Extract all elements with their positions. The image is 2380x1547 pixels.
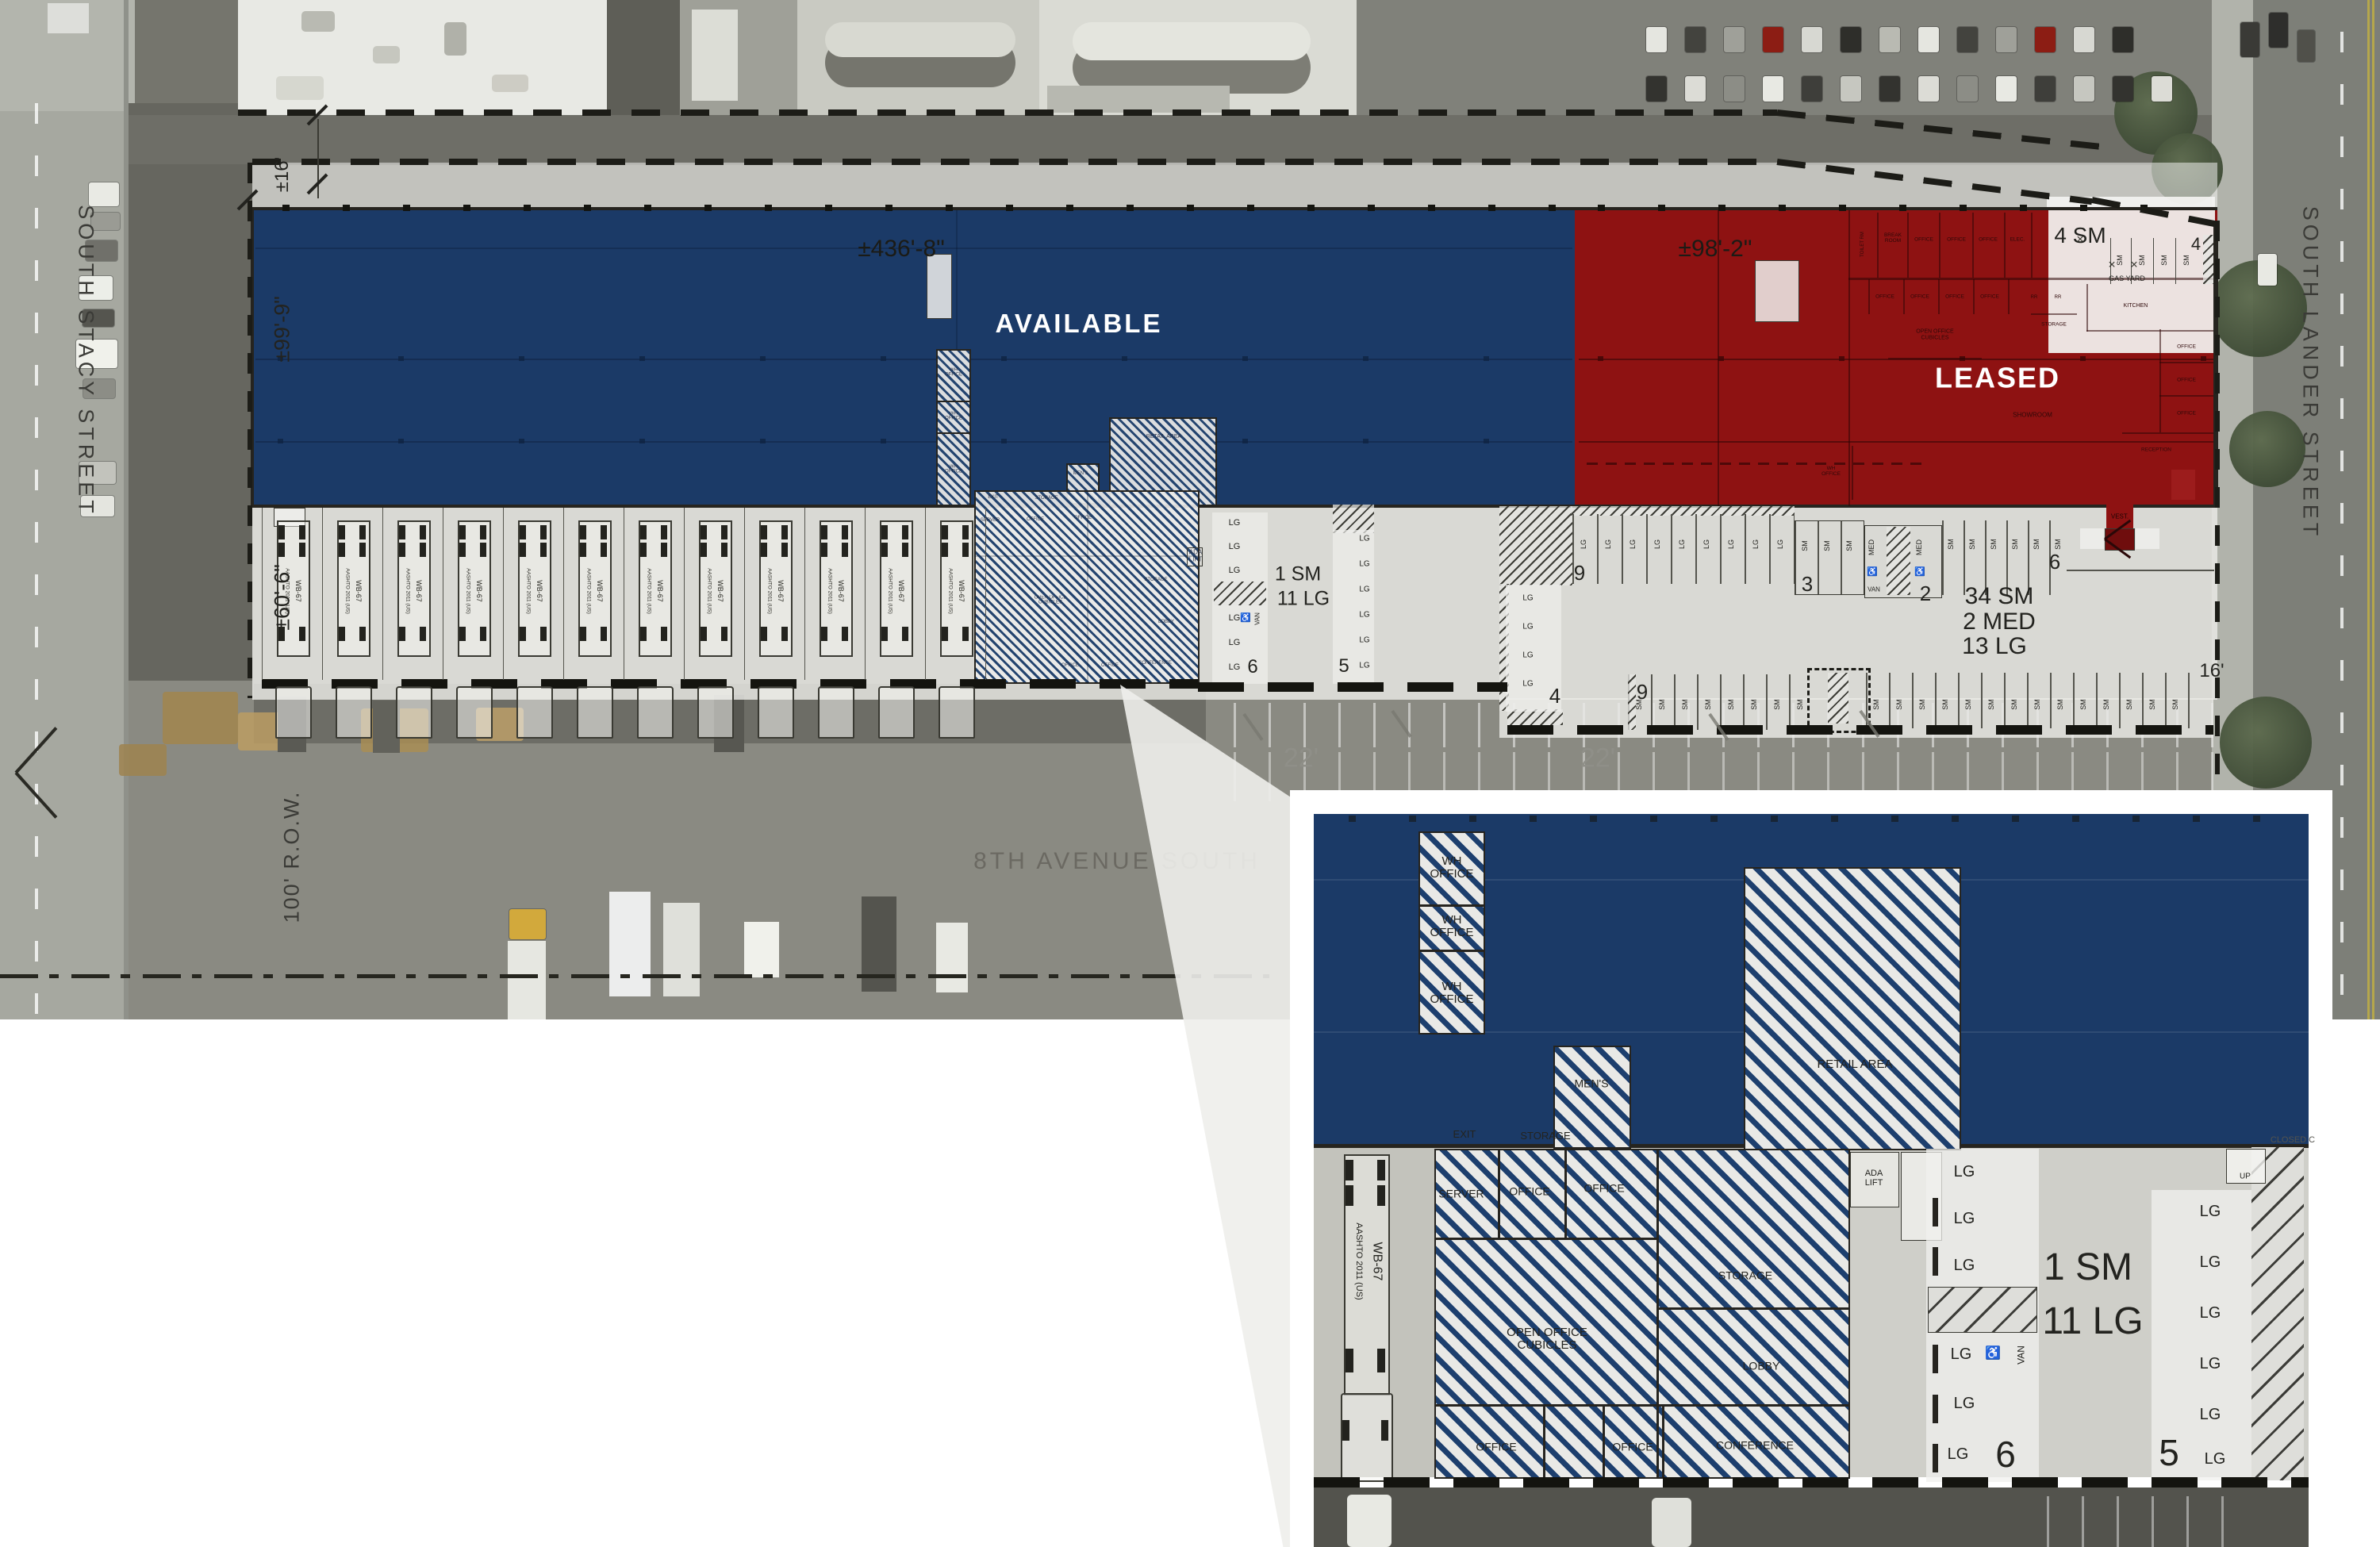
dock-truck-wheel (881, 543, 888, 557)
dock-truck-wheel (781, 525, 788, 539)
col-dots (278, 439, 1571, 443)
vest-exit-box (2105, 528, 2135, 551)
med-label: MED (1868, 539, 1876, 555)
open-office-l (1888, 358, 1982, 359)
leased-rr: RR (2055, 295, 2062, 300)
dock-truck-wheel (601, 627, 607, 641)
gas-4: 4 (2191, 235, 2201, 254)
rowB-sm-labels-r: SM (2103, 699, 2111, 710)
gas-sm-labels: SM (2183, 255, 2191, 266)
dock-truck-wheel (821, 525, 827, 539)
lg-col-mid-labels: LG (1522, 681, 1533, 689)
room-office: OFFICE (1061, 663, 1079, 668)
leased-office: OFFICE (1980, 294, 1999, 299)
lg-col-mid-labels: LG (1522, 652, 1533, 661)
rowB-sm-labels-r: SM (1942, 699, 1950, 710)
dock-truck-wheel (359, 525, 366, 539)
rowB-sm-labels-r: SM (1919, 699, 1927, 710)
dock-truck-label: WB-67 (354, 580, 362, 602)
rowB-sm-labels-l: SM (1636, 699, 1644, 710)
gas-sm-labels: SM (2161, 255, 2169, 266)
x-mark (15, 727, 58, 773)
lg-col-mid-labels: LG (1522, 624, 1533, 632)
dock-truck-wheel (781, 627, 788, 641)
room-wh: WH OFFICE (945, 412, 962, 422)
dock-truck-wheel (640, 627, 647, 641)
leased-room-div (2004, 213, 2006, 278)
dock-truck-cab (396, 686, 432, 739)
zone-leased: LEASED (1935, 363, 2060, 394)
dock-truck-wheel (299, 627, 305, 641)
rowB-sm-labels-r: SM (2126, 699, 2134, 710)
vest-stairs (2136, 528, 2159, 549)
dim-available: ±436'-8" (858, 236, 945, 262)
dock-truck-cab (939, 686, 975, 739)
leased-whoffice: WH OFFICE (1821, 466, 1841, 477)
dock-truck-cab (516, 686, 553, 739)
dock-truck-wheel (902, 543, 908, 557)
dim-east: 16' (2199, 661, 2224, 681)
dock-truck-wheel (701, 543, 707, 557)
rowB-sm-labels-r: SM (1965, 699, 1973, 710)
prop-dash-a (238, 109, 1777, 116)
dock-truck-wheel (540, 543, 547, 557)
dock-truck-wheel (580, 627, 586, 641)
summary-1sm: 1 SM (1275, 564, 1321, 585)
dock-truck-wheel (278, 543, 285, 557)
dock-truck-label: WB-67 (535, 580, 543, 602)
dock-bay-line (865, 508, 866, 680)
room-lobby: LOBBY (1158, 620, 1174, 624)
van-label: VAN (1255, 612, 1262, 625)
leased-toilet: TOILET RM (1860, 232, 1865, 257)
dim-dock: ±60'-6" (271, 564, 294, 631)
storage-box-l (2031, 313, 2077, 315)
dock-truck-wheel (520, 627, 526, 641)
centerline-8th (0, 974, 1269, 978)
dim-leased: ±98'-2" (1679, 236, 1752, 262)
dock-truck-wheel (902, 627, 908, 641)
lg-col-left-labels2: LG (1229, 639, 1241, 648)
reception-stair (2171, 470, 2195, 500)
rowB-sm-labels-r: SM (2057, 699, 2065, 710)
rowA-lg-labels: LG (1679, 539, 1687, 549)
leased-vest: VEST. (2111, 514, 2129, 521)
dock-bay-line (624, 508, 624, 680)
dock-truck-wheel (601, 543, 607, 557)
rowA-lg-labels: LG (1654, 539, 1662, 549)
leased-kitchen: KITCHEN (2124, 303, 2148, 309)
gas-yard: GAS YARD (2109, 275, 2145, 283)
dock-truck-wheel (721, 627, 727, 641)
rowB-sm-labels-r: SM (1896, 699, 1904, 710)
leased-room-div (1907, 213, 1909, 278)
rowA-sm6-labels: SM (2012, 539, 2020, 550)
dock-truck-cab (818, 686, 854, 739)
dock-truck-wheel (339, 543, 345, 557)
dock-bay-line (804, 508, 805, 680)
dock-truck-wheel (480, 543, 486, 557)
leased-room-div (1939, 213, 1940, 278)
dock-truck-wheel (661, 543, 667, 557)
wh-divider (936, 432, 971, 434)
dock-truck-label: WB-67 (776, 580, 784, 602)
lg-col-left-labels: LG (1229, 543, 1241, 552)
bumper-right (1507, 725, 2213, 735)
dock-truck-sublabel: AASHTO 2011 (US) (465, 568, 470, 614)
dock-truck-label: WB-67 (957, 580, 965, 602)
rowB-sm-labels-l: SM (1751, 699, 1759, 710)
room-wh: WH OFFICE (945, 465, 962, 475)
dock-truck-wheel (781, 543, 788, 557)
rowA-sm-labels: SM (1802, 540, 1810, 551)
office-row2-div (1973, 279, 1975, 314)
dock-truck-wheel (640, 543, 647, 557)
rowA-med-hatch (1887, 527, 1910, 595)
rowB-sm-labels-r: SM (2172, 699, 2180, 710)
leased-break: BREAK ROOM (1884, 232, 1902, 244)
bldg-bottom-wall (252, 505, 2217, 508)
leased-office: OFFICE (1910, 294, 1929, 299)
dock-truck-label: WB-67 (836, 580, 844, 602)
total-lg: 13 LG (1962, 634, 2027, 659)
rowA-sm6-labels: SM (2033, 539, 2041, 550)
dock-truck-cab (758, 686, 794, 739)
dock-truck-wheel (459, 627, 466, 641)
office-col-div (2159, 362, 2213, 363)
room-wh: WH OFFICE (945, 368, 962, 378)
leased-elec: ELEC. (2010, 236, 2025, 242)
ada-icon: ♿ (1914, 568, 1925, 578)
kitchen-wall (2086, 284, 2088, 332)
dock-truck-wheel (580, 525, 586, 539)
count-lg-row-a: 9 (1574, 562, 1585, 584)
lg-col-right-labels: LG (1359, 586, 1369, 595)
room-mens: MEN'S (1073, 471, 1088, 476)
office-row2-div (2008, 279, 2010, 314)
prop-dash-b (252, 159, 1777, 165)
dock-truck-wheel (278, 525, 285, 539)
dock-truck-wheel (881, 525, 888, 539)
ada-lift: ADA LIFT (1189, 549, 1202, 562)
dock-truck-label: WB-67 (414, 580, 422, 602)
ada-icon: ♿ (1867, 568, 1878, 578)
dock-truck-sublabel: AASHTO 2011 (US) (405, 568, 410, 614)
rowB-sm-labels-l: SM (1797, 699, 1805, 710)
dock-bay-line (684, 508, 685, 680)
dock-truck-label: WB-67 (716, 580, 724, 602)
leased-office: OFFICE (2177, 344, 2196, 349)
dock-bay-line (744, 508, 745, 680)
col-dots (278, 356, 1571, 361)
dock-truck-label: WB-67 (655, 580, 663, 602)
rowA-sm-labels: SM (1824, 540, 1832, 551)
ramp-hatch (1499, 506, 1572, 585)
dock-truck-wheel (540, 525, 547, 539)
dock-truck-wheel (399, 525, 405, 539)
stairwell (1755, 260, 1799, 322)
rowB-sm-labels-r: SM (2080, 699, 2088, 710)
rowA-lg-labels: LG (1752, 539, 1760, 549)
dock-truck-wheel (480, 627, 486, 641)
dock-truck-wheel (661, 627, 667, 641)
rowB-box-hatch (1828, 673, 1848, 724)
dock-truck-wheel (359, 543, 366, 557)
ext-line (317, 119, 319, 198)
count-sm6: 6 (2049, 551, 2060, 573)
dock-truck-cab (878, 686, 915, 739)
wh-office-wall (1852, 446, 1853, 500)
dock-truck-wheel (842, 627, 848, 641)
dock-truck-sublabel: AASHTO 2011 (US) (827, 568, 832, 614)
count-lg-mid: 4 (1549, 685, 1560, 707)
leased-rr: RR (2031, 295, 2038, 300)
room-office: OFFICE (1101, 663, 1119, 668)
dock-truck-wheel (761, 627, 767, 641)
leased-office: OFFICE (1945, 294, 1964, 299)
x-mark (15, 772, 58, 819)
dock-truck-wheel (962, 543, 969, 557)
room-conference: CONFERENCE (1138, 661, 1172, 666)
leased-showroom: SHOWROOM (2013, 413, 2052, 420)
dock-truck-wheel (299, 525, 305, 539)
leased-room-div (2031, 213, 2033, 278)
dock-truck-wheel (520, 543, 526, 557)
dock-bay-line (262, 508, 263, 680)
row-label: 100' R.O.W. (280, 791, 303, 923)
dock-truck-wheel (339, 525, 345, 539)
dock-truck-wheel (902, 525, 908, 539)
dock-truck-wheel (459, 525, 466, 539)
lg-col-left-labels: LG (1229, 519, 1241, 528)
room-storage2: STORAGE (1144, 578, 1167, 582)
dock-truck-cab (697, 686, 734, 739)
rowB-sm-labels-r: SM (2149, 699, 2157, 710)
rowA-lg-labels: LG (1703, 539, 1711, 549)
summary-11lg: 11 LG (1277, 589, 1330, 610)
dock-truck-wheel (701, 525, 707, 539)
rowA-lg-labels: LG (1630, 539, 1637, 549)
office-row2-div (1938, 279, 1940, 314)
canopy-hatch (1333, 505, 1374, 533)
dock-truck-wheel (420, 543, 426, 557)
dock-truck-wheel (821, 627, 827, 641)
dim-north: ±99'-9" (271, 296, 294, 363)
rowB-sm-labels-l: SM (1774, 699, 1782, 710)
dock-bay-line (925, 508, 926, 680)
med-label: MED (1916, 539, 1924, 555)
dock-truck-cab (336, 686, 372, 739)
dock-bay-line (443, 508, 443, 680)
room-openoffice: OPEN OFFICE CUBICLES (1035, 596, 1067, 606)
total-med: 2 MED (1963, 609, 2036, 635)
rowB-sm-labels-r: SM (1873, 699, 1881, 710)
leased-room-div (1877, 213, 1879, 278)
dock-truck-cab (275, 686, 312, 739)
van-label: VAN (1868, 587, 1880, 594)
prop-dash-left (248, 163, 252, 698)
gas-sm-labels: SM (2117, 255, 2125, 266)
dock-truck-cab (456, 686, 493, 739)
dock-truck-wheel (842, 543, 848, 557)
dock-truck-sublabel: AASHTO 2011 (US) (585, 568, 591, 614)
yard-slash (1242, 713, 1263, 741)
dock-truck-wheel (661, 525, 667, 539)
dock-truck-sublabel: AASHTO 2011 (US) (646, 568, 651, 614)
dock-truck-wheel (420, 525, 426, 539)
total-sm: 34 SM (1965, 584, 2034, 609)
dock-truck-wheel (640, 525, 647, 539)
leased-office: OFFICE (1914, 236, 1933, 242)
lg-col-right-labels: LG (1359, 637, 1369, 646)
lg-col-left-labels: LG (1229, 566, 1241, 576)
dock-truck-cab (577, 686, 613, 739)
dock-truck-wheel (359, 627, 366, 641)
bumper-mid (1198, 682, 1507, 692)
room-office: OFFICE (1027, 517, 1044, 522)
dock-truck-sublabel: AASHTO 2011 (US) (706, 568, 712, 614)
dock-truck-wheel (942, 543, 948, 557)
rowB-sm-labels-l: SM (1705, 699, 1713, 710)
lg-col-right-labels: LG (1359, 662, 1369, 671)
dim-setback: ±16' (272, 157, 293, 192)
street-left: SOUTH STACY STREET (74, 205, 97, 517)
office-row2-div (1868, 279, 1870, 314)
dock-truck-sublabel: AASHTO 2011 (US) (344, 568, 350, 614)
rowA-lg-labels: LG (1728, 539, 1736, 549)
lg-col-left-labels2: LG (1229, 614, 1241, 624)
vest-stairs (2080, 528, 2104, 549)
stairwell (927, 254, 952, 319)
leased-office: OFFICE (2177, 377, 2196, 382)
showroom-dash (1587, 463, 1928, 465)
count-lg-col2: 5 (1338, 656, 1349, 677)
dock-truck-wheel (420, 627, 426, 641)
dock-truck-wheel (821, 543, 827, 557)
gas-hatch (2203, 235, 2214, 284)
dock-truck-sublabel: AASHTO 2011 (US) (766, 568, 772, 614)
count-sm3: 3 (1802, 573, 1813, 595)
leased-office: OFFICE (1979, 236, 1998, 242)
rowA-sm-labels: SM (1846, 540, 1854, 551)
col-ticks-a (282, 205, 1568, 211)
rowB-sm-labels-l: SM (1682, 699, 1690, 710)
count-lg-col: 6 (1247, 657, 1257, 678)
leased-openoffice: OPEN OFFICE CUBICLES (1916, 328, 1953, 340)
gas-x: × (2076, 232, 2083, 246)
dock-truck-wheel (842, 525, 848, 539)
gas-stall-div (2153, 238, 2154, 284)
int-wall (956, 210, 958, 369)
rowA-sm6-labels: SM (1948, 539, 1956, 550)
room-office: OFFICE (1074, 516, 1092, 520)
gas-stall-div (2175, 238, 2176, 284)
leased-office: OFFICE (1947, 236, 1966, 242)
dock-bay-line (382, 508, 383, 680)
office-row2-div (1903, 279, 1905, 314)
dock-truck-wheel (942, 525, 948, 539)
dock-truck-wheel (761, 543, 767, 557)
room-storage: STORAGE (1035, 496, 1058, 501)
rowA-sm6-labels: SM (1969, 539, 1977, 550)
yard-dim: 22' (1580, 744, 1615, 773)
dock-truck-wheel (721, 543, 727, 557)
zone-available: AVAILABLE (996, 309, 1163, 338)
dock-truck-wheel (339, 627, 345, 641)
dock-bay-line (563, 508, 564, 680)
lg-col-mid-labels: LG (1522, 595, 1533, 604)
dock-truck-wheel (459, 543, 466, 557)
gas-x: × (2108, 258, 2115, 271)
rowB-sm-labels-r: SM (2034, 699, 2042, 710)
dock-truck-wheel (721, 525, 727, 539)
dock-truck-wheel (480, 525, 486, 539)
ada-icon: ♿ (1240, 614, 1251, 624)
lg-col-left-labels2: LG (1229, 663, 1241, 673)
count-med: 2 (1920, 582, 1931, 605)
dock-truck-label: WB-67 (474, 580, 482, 602)
rowA-lg-labels: LG (1777, 539, 1785, 549)
dock-truck-wheel (540, 627, 547, 641)
dock-truck-label: WB-67 (294, 580, 301, 602)
dock-truck-sublabel: AASHTO 2011 (US) (947, 568, 953, 614)
dock-truck-wheel (399, 627, 405, 641)
leased-office: OFFICE (1875, 294, 1894, 299)
room-server: SERVER (981, 518, 1000, 523)
office-col-wall (2159, 329, 2161, 432)
office-col-div (2159, 395, 2213, 397)
lg-col-right-labels: LG (1359, 612, 1369, 620)
dock-bay-line (985, 508, 986, 680)
rowB-sm-labels-l: SM (1659, 699, 1667, 710)
dock-truck-wheel (881, 627, 888, 641)
dock-bay-line (322, 508, 323, 680)
lg-swatch (1214, 582, 1266, 605)
aisle-curb (2067, 570, 2214, 571)
rowB-sm-labels-l: SM (1728, 699, 1736, 710)
rowA-sm6-labels: SM (1990, 539, 1998, 550)
dock-truck-wheel (701, 627, 707, 641)
ramp-hatch-foot (1507, 709, 1563, 725)
dock-truck-sublabel: AASHTO 2011 (US) (887, 568, 892, 614)
rowA-lg-labels: LG (1605, 539, 1613, 549)
grid-line-red (1579, 441, 2213, 443)
dock-truck-wheel (942, 627, 948, 641)
dock-truck-wheel (761, 525, 767, 539)
lg-col-right-labels: LG (1359, 561, 1369, 570)
dock-bay-line (503, 508, 504, 680)
room-exit: EXIT (988, 495, 998, 500)
dock-truck-wheel (601, 525, 607, 539)
leased-room-div (1972, 213, 1974, 278)
dock-truck-wheel (580, 543, 586, 557)
yard-slash (1391, 710, 1411, 738)
dock-truck-label: WB-67 (595, 580, 603, 602)
dock-truck-wheel (399, 543, 405, 557)
leased-office: OFFICE (2177, 410, 2196, 416)
reception-wall (2122, 432, 2216, 434)
wh-divider (936, 401, 971, 402)
yard-dim: 22' (1284, 744, 1319, 773)
rowA-lg-labels: LG (1580, 539, 1588, 549)
dock-truck-label: WB-67 (896, 580, 904, 602)
prop-slant-a (1777, 109, 2118, 152)
rowB-sm-labels-r: SM (1988, 699, 1996, 710)
dock-truck-cab (637, 686, 674, 739)
gas-sm-labels: SM (2139, 255, 2147, 266)
dock-truck-wheel (520, 525, 526, 539)
kitchen-wall-b (2086, 330, 2213, 332)
